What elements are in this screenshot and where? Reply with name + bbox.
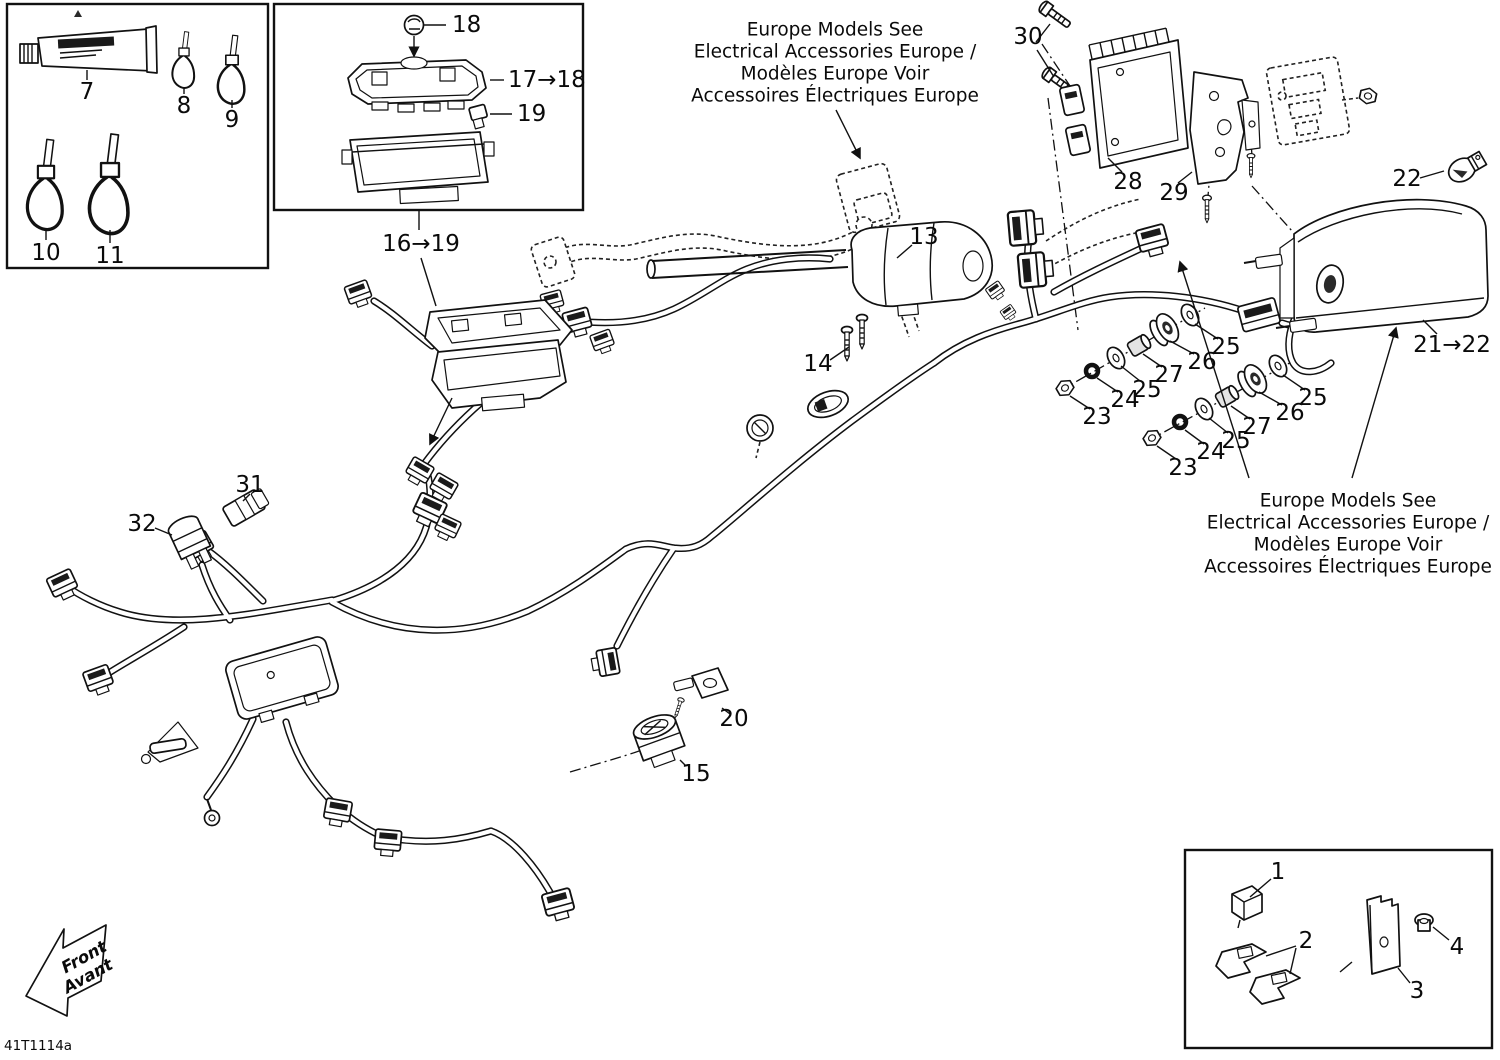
part-11-cable-tie — [89, 134, 127, 234]
part-label-23a: 23 — [1082, 404, 1111, 430]
part-label-19: 19 — [517, 101, 546, 127]
part-14-screws — [842, 315, 868, 362]
part-15-connector — [630, 710, 688, 770]
part-1-clip — [1232, 886, 1262, 928]
europe-note-right: Europe Models See Electrical Accessories… — [1204, 491, 1492, 578]
rear-module-nut — [1359, 87, 1378, 106]
part-label-27a: 27 — [1154, 362, 1183, 388]
europe-note-top-line3: Modèles Europe Voir — [741, 64, 930, 85]
europe-note-top-line4: Accessoires Électriques Europe — [691, 85, 979, 107]
part-28-ecu-module — [1059, 28, 1188, 168]
part-3-bracket — [1340, 896, 1400, 974]
europe-note-top: Europe Models See Electrical Accessories… — [691, 20, 979, 107]
axis-lines — [570, 44, 1300, 772]
part-8-cable-tie — [172, 32, 194, 88]
leader-16-19-bottom — [421, 258, 436, 306]
part-label-7: 7 — [80, 79, 95, 105]
round-connector — [747, 415, 773, 458]
part-label-32: 32 — [127, 511, 156, 537]
part-label-18: 18 — [452, 12, 481, 38]
part-13-handlebar-switch — [647, 222, 992, 316]
part-2-clips — [1216, 944, 1300, 1004]
part-label-3: 3 — [1410, 978, 1425, 1004]
part-4-rivet — [1415, 914, 1433, 931]
inset-box-fasteners — [7, 4, 268, 268]
part-10-cable-tie — [27, 139, 62, 229]
part-label-25d: 25 — [1298, 385, 1327, 411]
part-17-fusebox-cover — [348, 57, 486, 112]
part-7-sealant-tube — [20, 10, 157, 73]
europe-note-right-line1: Europe Models See — [1260, 491, 1437, 512]
part-label-22: 22 — [1392, 166, 1421, 192]
part-label-25b: 25 — [1211, 334, 1240, 360]
part-label-31: 31 — [235, 472, 264, 498]
front-direction-arrow: Front Avant — [26, 925, 117, 1016]
europe-note-top-line1: Europe Models See — [747, 20, 924, 41]
wiring-harness-diagram: Front Avant 7 8 9 10 11 18 17→18 19 16→1… — [0, 0, 1500, 1055]
part-19-sensor — [469, 104, 488, 129]
diagram-code: 41T1114a — [4, 1038, 72, 1054]
europe-note-right-line4: Accessoires Électriques Europe — [1204, 556, 1492, 578]
europe-note-right-line3: Modèles Europe Voir — [1254, 535, 1443, 556]
part-label-30: 30 — [1013, 24, 1042, 50]
part-label-16-19: 16→19 — [382, 231, 460, 257]
part-label-1: 1 — [1271, 859, 1286, 885]
part-label-20: 20 — [719, 706, 748, 732]
part-label-10: 10 — [31, 240, 60, 266]
rear-ghost-module — [1266, 56, 1378, 145]
part-label-14: 14 — [803, 351, 832, 377]
part-label-9: 9 — [225, 107, 240, 133]
part-label-2: 2 — [1299, 928, 1314, 954]
part-label-13: 13 — [909, 224, 938, 250]
part-label-28: 28 — [1113, 169, 1142, 195]
europe-note-top-line2: Electrical Accessories Europe / — [694, 42, 977, 63]
europe-ghost-connector — [835, 162, 901, 233]
harness-clamp — [142, 722, 199, 764]
harness-junction-box — [224, 635, 342, 728]
oval-connector — [804, 386, 852, 423]
part-label-15: 15 — [681, 761, 710, 787]
part-29-bracket — [1190, 72, 1260, 223]
part-label-23b: 23 — [1168, 455, 1197, 481]
instrument-cluster — [425, 300, 572, 444]
part-30-bolts — [1037, 0, 1076, 97]
part-label-4: 4 — [1450, 934, 1465, 960]
part-18-cap — [405, 16, 424, 35]
part-9-cable-tie — [218, 35, 244, 104]
part-22-bulb — [1444, 148, 1488, 186]
part-label-17-18: 17→18 — [508, 67, 586, 93]
part-label-8: 8 — [177, 93, 192, 119]
ghost-connector-left — [530, 236, 576, 288]
inset-box-clips — [1185, 850, 1492, 1048]
parts-diagram-page: Front Avant 7 8 9 10 11 18 17→18 19 16→1… — [0, 0, 1500, 1055]
part-16-fusebox-body — [342, 132, 494, 204]
europe-note-right-line2: Electrical Accessories Europe / — [1207, 513, 1490, 534]
taillight-connector — [1237, 297, 1280, 332]
tail-light-assembly — [1244, 200, 1488, 333]
part-label-27b: 27 — [1242, 414, 1271, 440]
part-32-switch — [166, 512, 216, 571]
ground-ring-terminal — [205, 799, 220, 826]
part-label-11: 11 — [95, 243, 124, 269]
part-label-29: 29 — [1159, 180, 1188, 206]
part-label-21-22: 21→22 — [1413, 332, 1491, 358]
